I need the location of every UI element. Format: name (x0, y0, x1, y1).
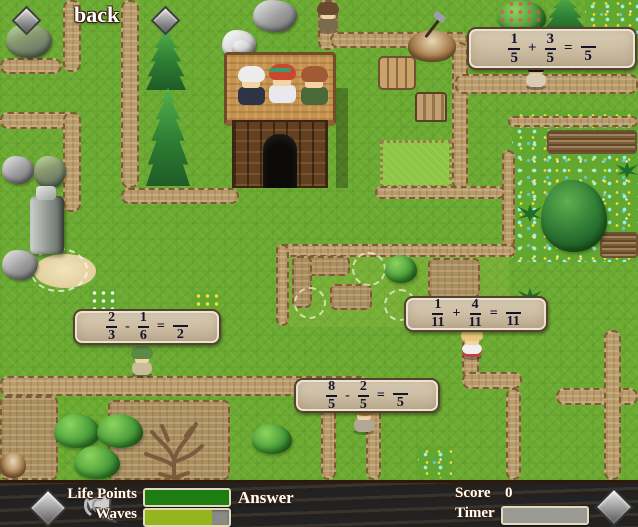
game-map: back 15 + 35 = 5 23 - 16 = 2 111 + 411 =… (0, 0, 638, 480)
path-segment (121, 188, 239, 204)
dirt-patch (428, 258, 480, 298)
enemy-body (318, 18, 338, 31)
enemy-white-dress-girl (460, 328, 484, 357)
equals-sign: = (489, 306, 499, 322)
enemy-body (526, 74, 546, 87)
numerator: 1 (138, 311, 149, 328)
denominator: 5 (547, 50, 555, 66)
fraction: 23 (106, 311, 117, 343)
back-button[interactable]: back (74, 2, 119, 28)
path-segment (604, 330, 621, 480)
tree-stump (0, 452, 26, 478)
farmland-rows (547, 130, 637, 154)
rock-slab (2, 250, 38, 280)
path-segment (63, 112, 81, 212)
npc-body (301, 87, 328, 105)
game-screen: back 15 + 35 = 5 23 - 16 = 2 111 + 411 =… (0, 0, 638, 527)
dead-tree (138, 410, 210, 480)
operator: - (344, 388, 351, 404)
circle-outline (294, 287, 326, 319)
waves-bar (143, 508, 231, 527)
bright-grass-patch (380, 140, 452, 188)
operator: - (124, 319, 131, 335)
blank-numerator (581, 34, 596, 48)
path-segment (452, 42, 468, 190)
denominator: 11 (431, 315, 444, 330)
path-segment (121, 0, 139, 188)
enemy-body (354, 419, 374, 432)
denominator: 5 (397, 395, 404, 410)
npc-red-haired-girl (267, 64, 297, 103)
operator: + (452, 306, 462, 322)
answer-fraction: 5 (393, 381, 408, 410)
path-segment (556, 388, 638, 405)
npc-hair (269, 64, 296, 80)
denominator: 2 (177, 327, 184, 342)
npc-white-haired-elder (236, 66, 266, 105)
bush (385, 255, 417, 283)
life-points-bar (143, 488, 231, 507)
score-label: Score (455, 485, 491, 502)
numerator: 2 (106, 311, 117, 328)
bush (97, 414, 143, 448)
numerator: 4 (470, 298, 481, 315)
enemy-hair (131, 346, 153, 359)
denominator: 5 (360, 397, 367, 412)
answer-fraction: 5 (581, 34, 596, 64)
denominator: 5 (328, 397, 335, 412)
npc-body (238, 87, 265, 105)
flower-field (418, 448, 452, 478)
path-segment (0, 58, 62, 74)
path-segment (375, 186, 505, 199)
fraction: 16 (138, 311, 149, 343)
house-shadow (336, 88, 348, 188)
score-value: 0 (505, 485, 513, 502)
white-flowers (90, 289, 116, 309)
npc-brown-haired-man (299, 66, 329, 105)
numerator: 1 (508, 32, 520, 50)
house-door (263, 134, 297, 188)
stone-pillar (30, 196, 64, 254)
bush (54, 414, 100, 448)
waves-label: Waves (30, 506, 137, 523)
blank-numerator (173, 313, 188, 327)
equals-sign: = (563, 40, 574, 57)
numerator: 3 (545, 32, 557, 50)
npc-hair (301, 66, 328, 82)
denominator: 5 (584, 48, 592, 64)
diamond-marker-icon (151, 6, 181, 36)
path-segment (462, 372, 522, 389)
farmland-rows (600, 232, 638, 258)
life-points-label: Life Points (30, 486, 137, 503)
wood-stack (415, 92, 447, 122)
pillar-cap (36, 186, 56, 200)
enemy-body (462, 344, 482, 357)
problem-box-2: 23 - 16 = 2 (73, 309, 221, 345)
dirt-patch (330, 284, 372, 310)
diamond-icon (594, 487, 634, 527)
numerator: 8 (326, 380, 337, 397)
denominator: 6 (140, 328, 147, 343)
timer-label: Timer (455, 505, 495, 522)
log-pile (378, 56, 416, 90)
numerator: 1 (432, 298, 443, 315)
path-segment (508, 116, 638, 127)
waves-fill (145, 510, 212, 525)
fraction: 85 (326, 380, 337, 412)
npc-body (269, 85, 296, 103)
pine-tree (146, 28, 186, 90)
fraction: 15 (508, 32, 520, 66)
fraction: 111 (431, 298, 444, 330)
timer-bar (501, 506, 589, 525)
bush (252, 424, 292, 454)
enemy-body (132, 362, 152, 375)
numerator: 2 (358, 380, 369, 397)
denominator: 11 (469, 315, 482, 330)
equals-sign: = (156, 319, 166, 335)
bush (74, 446, 120, 479)
path-segment (502, 150, 515, 248)
npc-hair (238, 66, 265, 82)
enemy-green-cap (130, 346, 154, 375)
timer-fill (503, 508, 587, 523)
mossy-rock (34, 156, 66, 188)
answer-input[interactable]: Answer (238, 488, 294, 508)
problem-box-4: 85 - 25 = 5 (294, 378, 440, 413)
problem-box-1: 15 + 35 = 5 (467, 27, 637, 70)
equals-sign: = (376, 388, 386, 404)
tree-stump (408, 30, 456, 62)
hud-bar: Life Points Waves Answer Score 0 Timer (0, 480, 638, 527)
denominator: 3 (108, 328, 115, 343)
circle-outline (30, 248, 88, 292)
problem-box-3: 111 + 411 = 11 (404, 296, 548, 332)
denominator: 5 (510, 50, 518, 66)
fraction: 411 (469, 298, 482, 330)
enemy-hair (317, 2, 339, 15)
path-segment (506, 388, 521, 480)
operator: + (527, 40, 538, 57)
denominator: 11 (507, 314, 520, 329)
headband (269, 68, 291, 72)
fraction: 35 (545, 32, 557, 66)
rock (2, 156, 34, 184)
life-points-fill (145, 490, 229, 505)
blank-numerator (393, 381, 408, 395)
path-segment (276, 244, 289, 326)
enemy-soldier (316, 2, 340, 31)
circle-outline (352, 252, 386, 286)
answer-fraction: 11 (506, 300, 521, 329)
blank-numerator (506, 300, 521, 314)
fraction: 25 (358, 380, 369, 412)
answer-fraction: 2 (173, 313, 188, 342)
pine-tree (146, 88, 190, 186)
rock-pile (253, 0, 297, 32)
